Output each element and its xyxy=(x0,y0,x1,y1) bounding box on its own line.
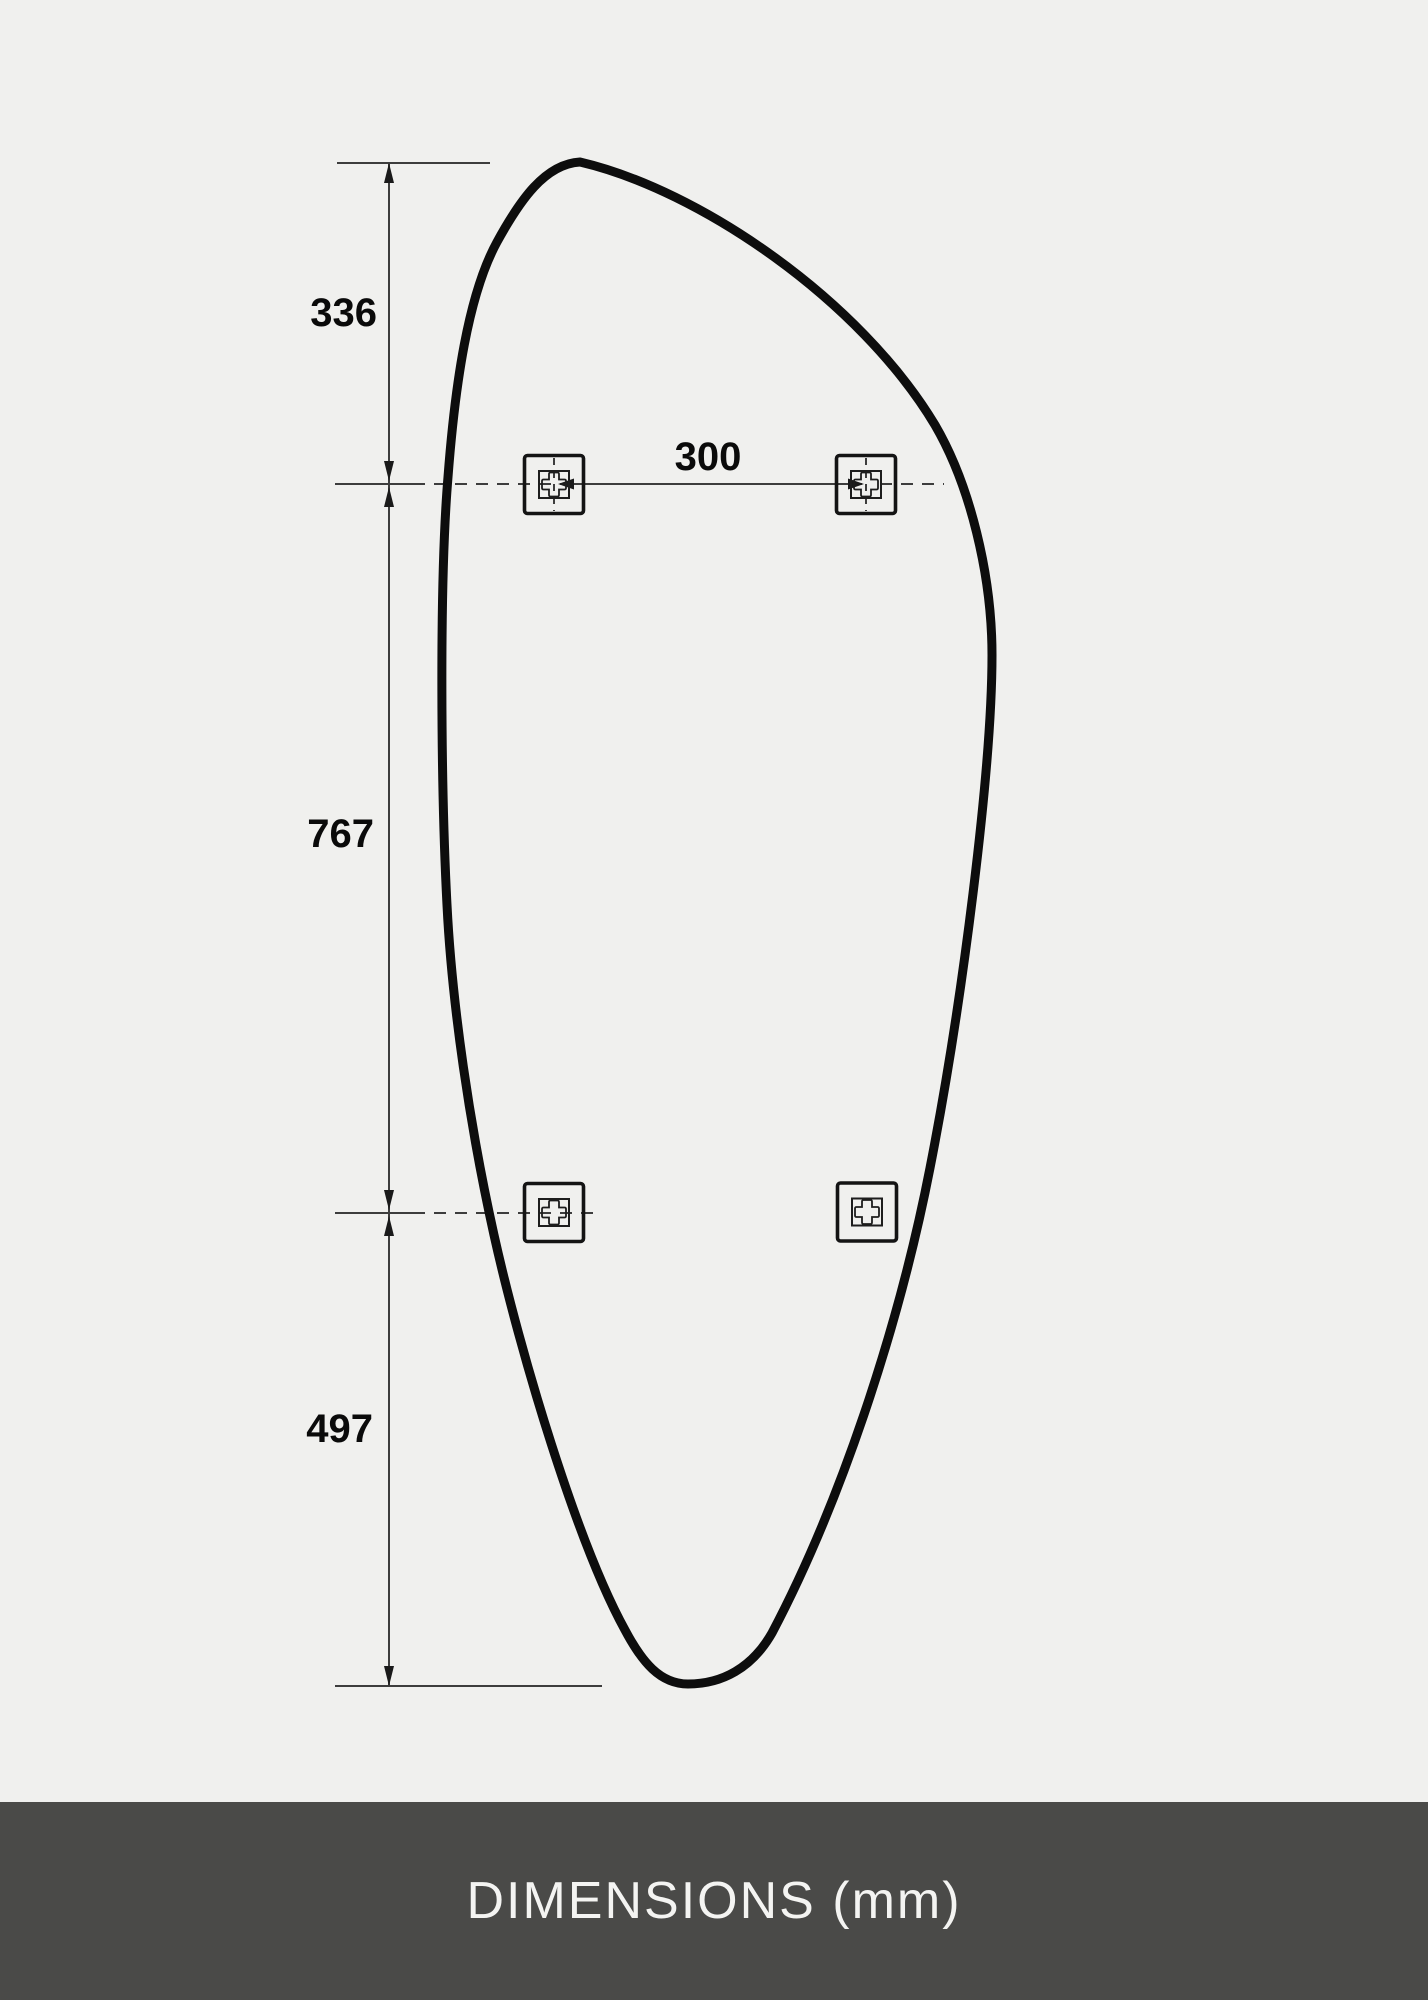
horizontal-dimension: 300 xyxy=(558,435,864,490)
arrowhead-down-icon xyxy=(384,461,394,481)
dimension-label-middle-section: 767 xyxy=(307,812,374,856)
vertical-dimension-chain: 336 767 497 xyxy=(306,163,394,1686)
dimension-label-bottom-section: 497 xyxy=(306,1407,373,1451)
arrowhead-down-icon xyxy=(384,1190,394,1210)
mirror-outline xyxy=(442,162,992,1684)
mirror-dimension-drawing: 336 767 497 300 xyxy=(0,0,1428,1802)
bracket-bottom-left xyxy=(525,1184,584,1242)
dimension-label-top-section: 336 xyxy=(310,291,377,335)
dimension-diagram-page: 336 767 497 300 DIMENSIONS (mm) xyxy=(0,0,1428,2000)
arrowhead-up-icon xyxy=(384,1216,394,1236)
footer-caption: DIMENSIONS (mm) xyxy=(466,1871,961,1931)
arrowhead-up-icon xyxy=(384,487,394,507)
bracket-bottom-right xyxy=(838,1183,897,1241)
dimension-label-bracket-spacing: 300 xyxy=(675,435,742,479)
arrowhead-down-icon xyxy=(384,1666,394,1686)
arrowhead-up-icon xyxy=(384,163,394,183)
footer-bar: DIMENSIONS (mm) xyxy=(0,1802,1428,2000)
